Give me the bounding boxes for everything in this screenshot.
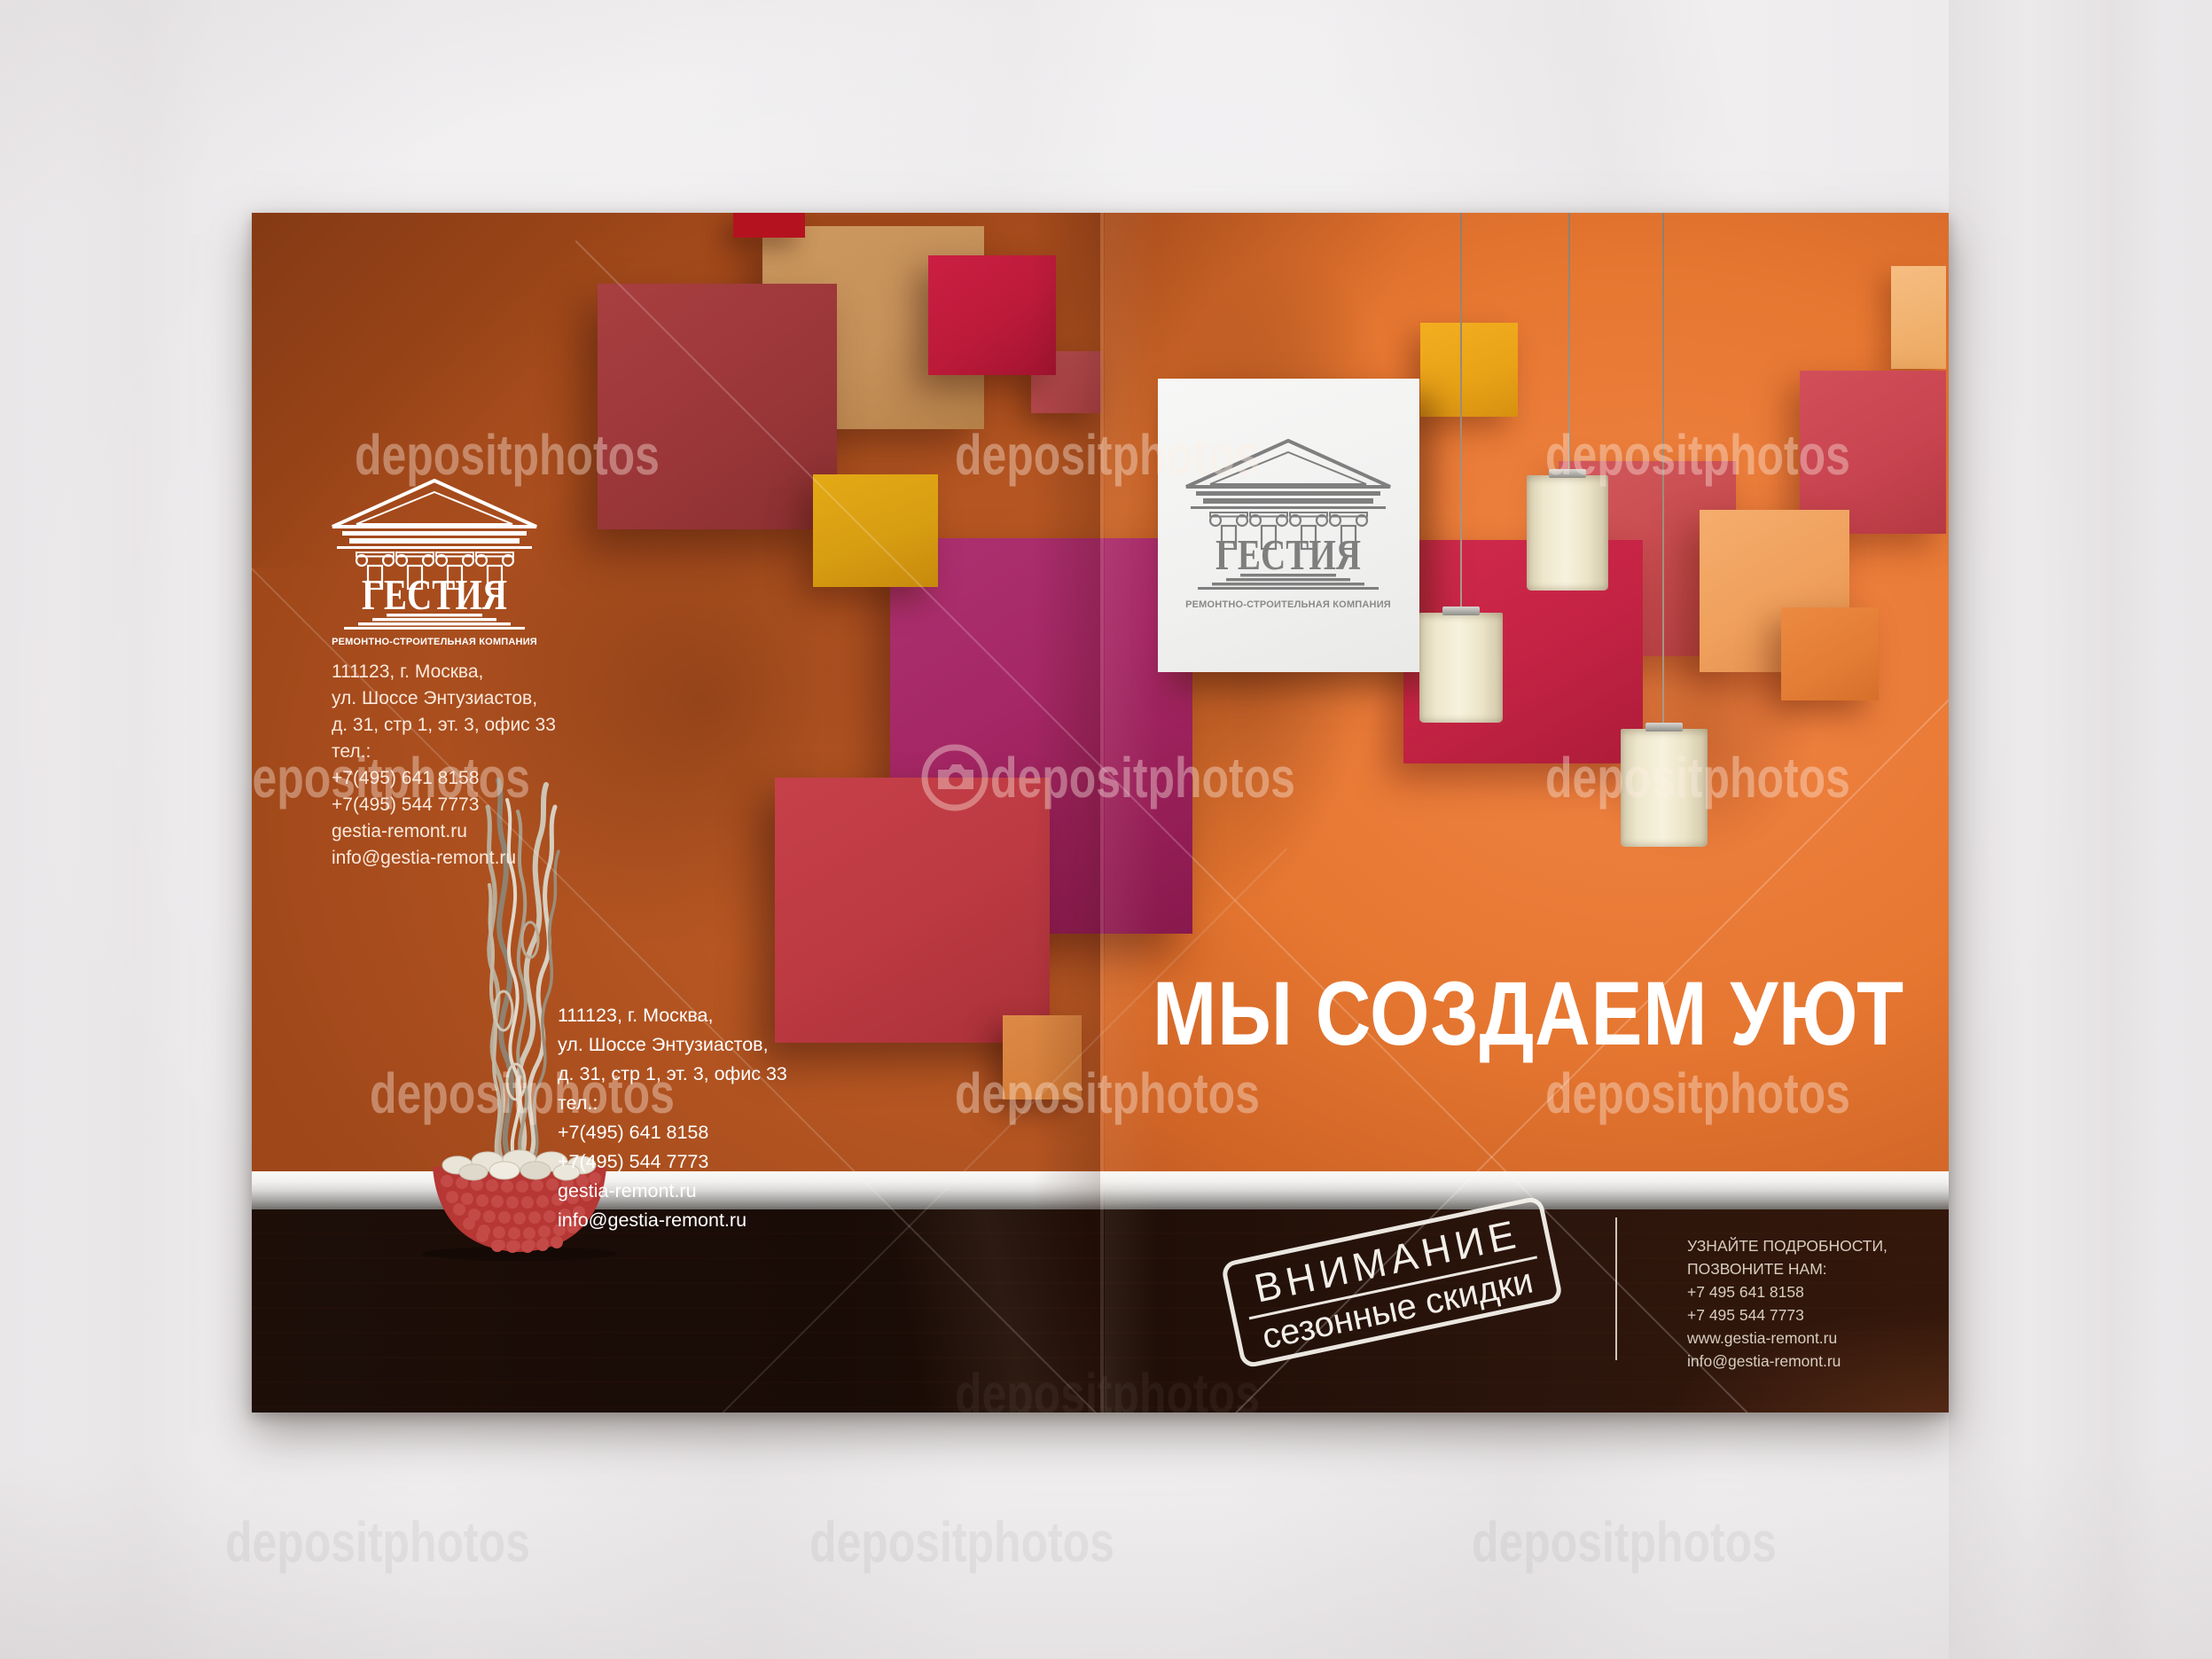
svg-text:ГЕСТИЯ: ГЕСТИЯ <box>362 570 507 619</box>
svg-text:ГЕСТИЯ: ГЕСТИЯ <box>1215 530 1361 579</box>
